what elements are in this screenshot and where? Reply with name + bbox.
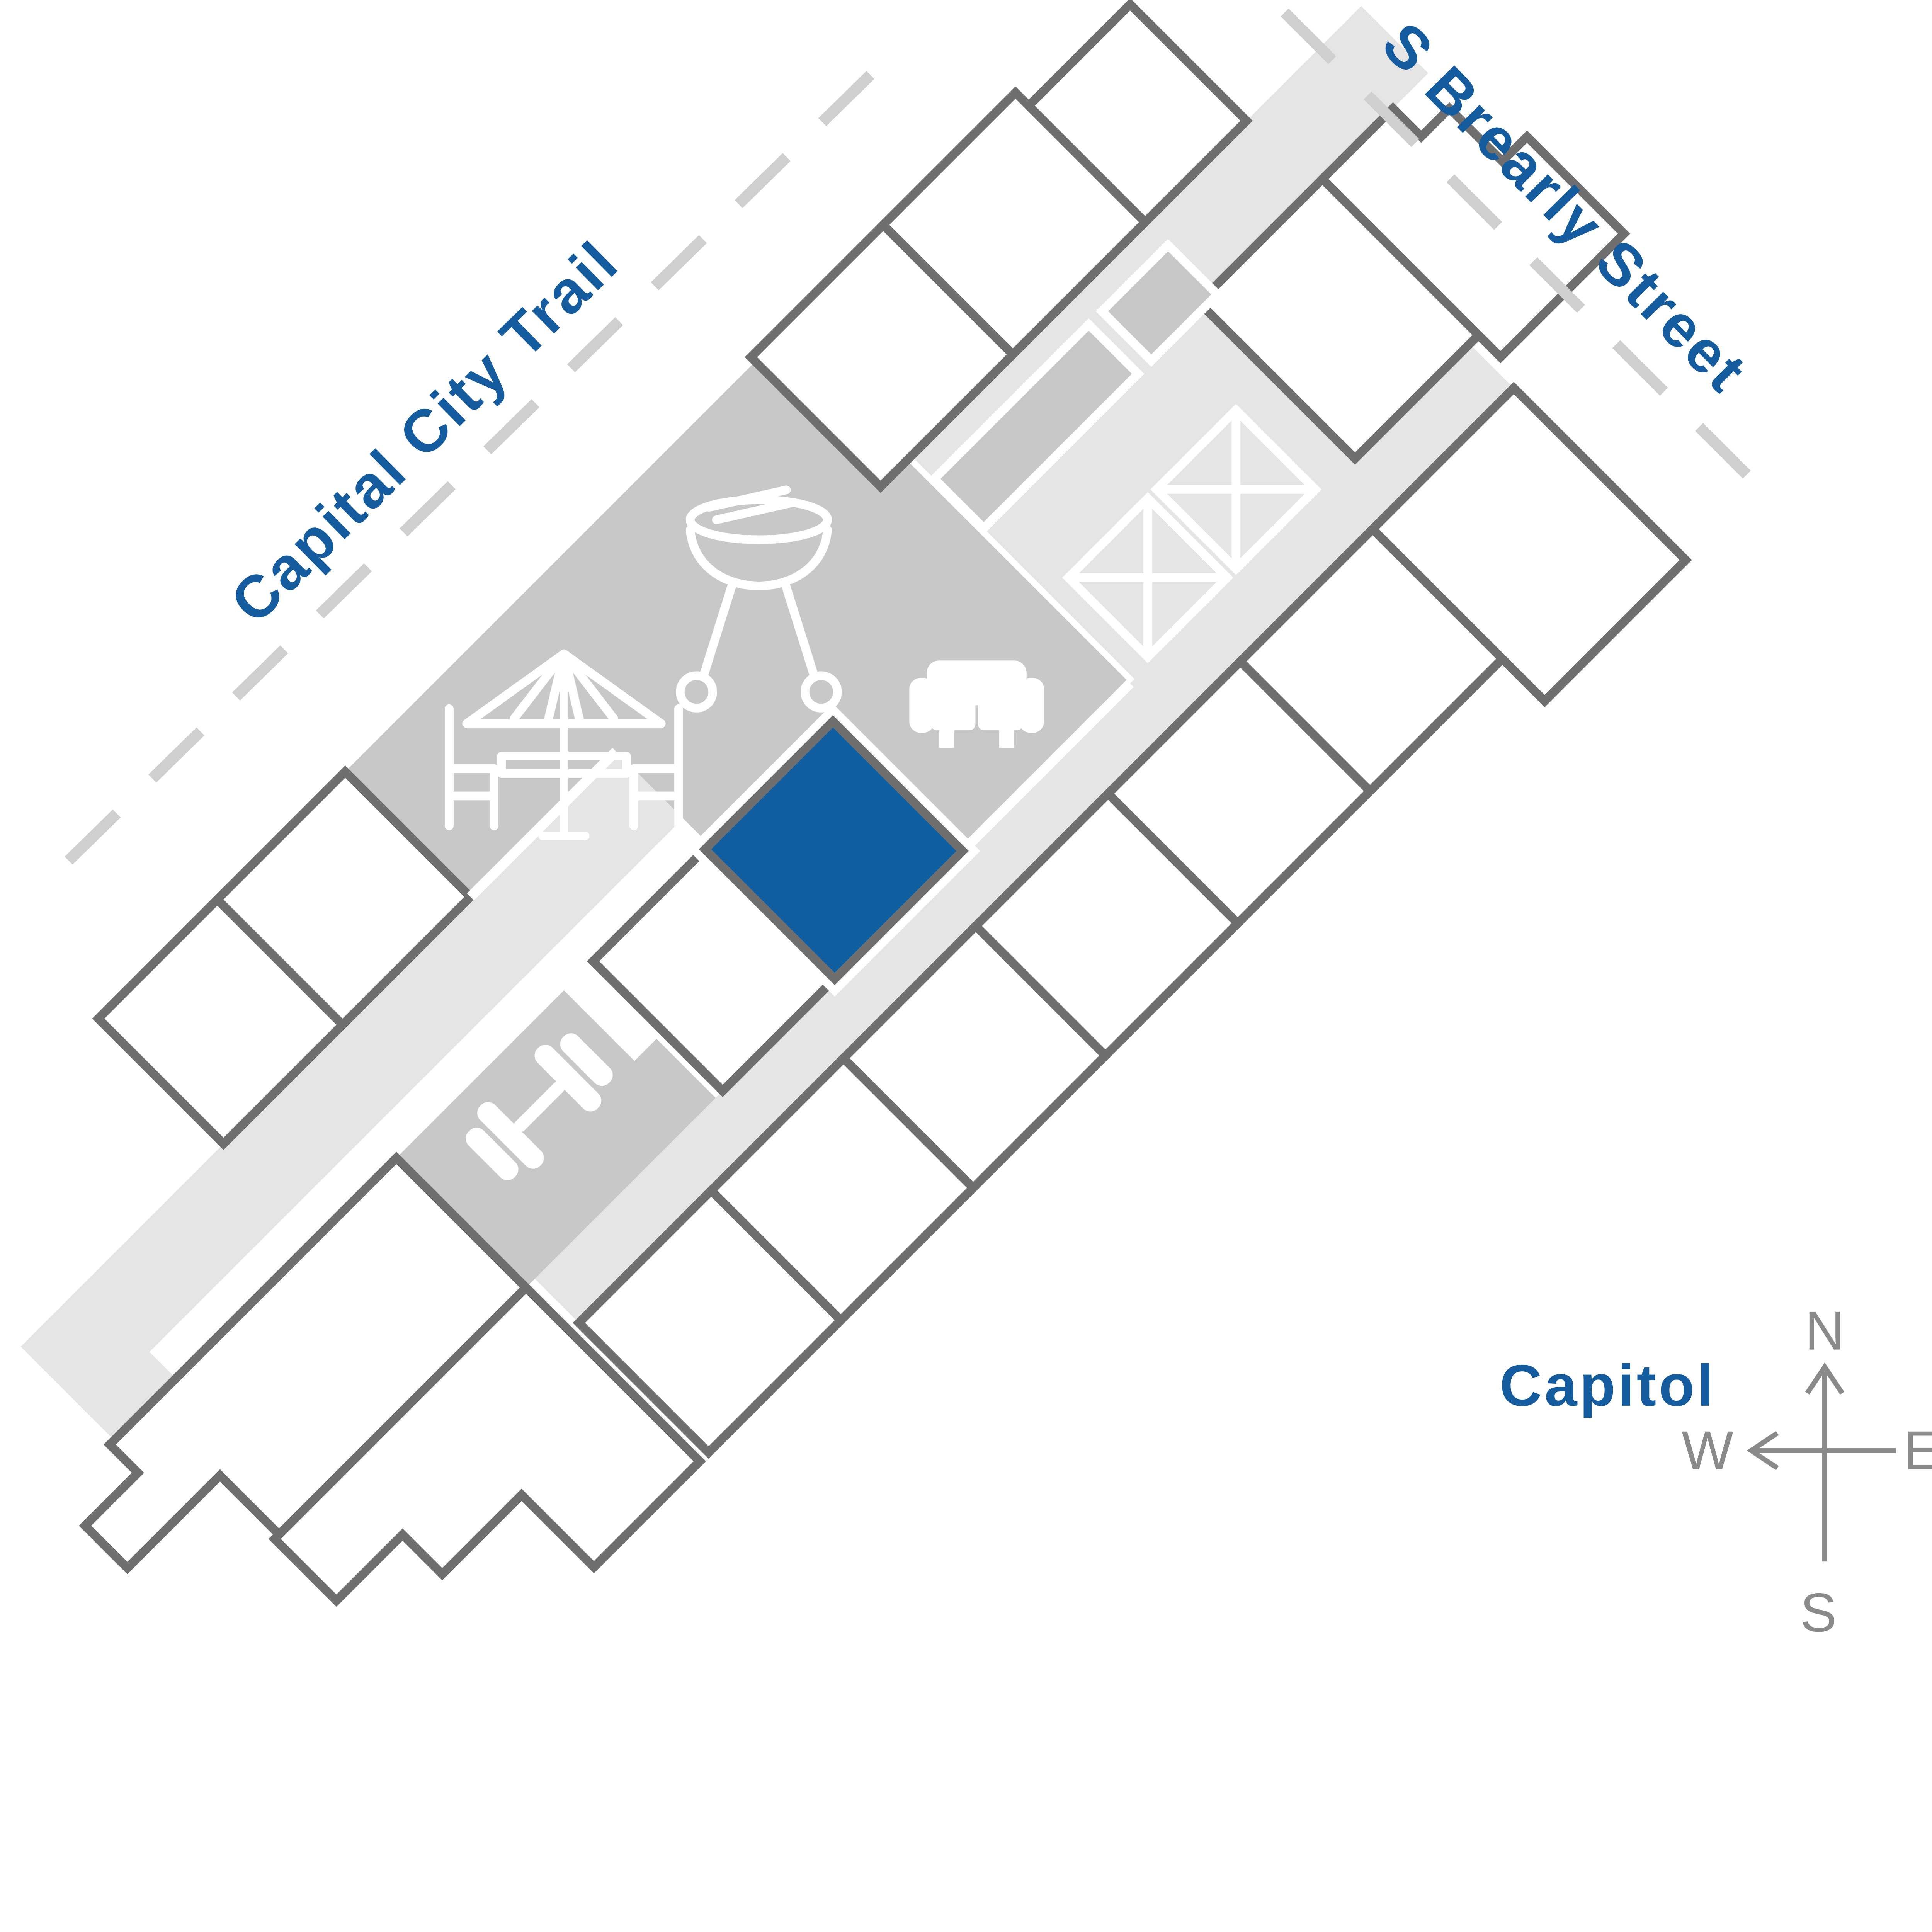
compass-south-label: S bbox=[1800, 1582, 1837, 1643]
compass-east-label: E bbox=[1904, 1420, 1932, 1481]
compass-rose: N E S W bbox=[1682, 1300, 1932, 1644]
site-plan-map: Capital City Trail S Brearly Street Capi… bbox=[0, 0, 1932, 1654]
capitol-label: Capitol bbox=[1500, 1353, 1716, 1418]
compass-north-label: N bbox=[1805, 1300, 1845, 1362]
compass-west-label: W bbox=[1682, 1420, 1733, 1481]
